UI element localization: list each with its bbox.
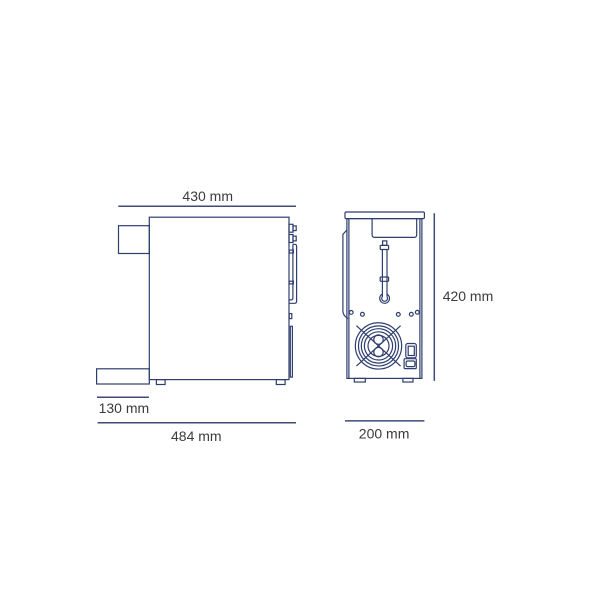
svg-text:130 mm: 130 mm xyxy=(99,400,150,416)
svg-text:430 mm: 430 mm xyxy=(182,188,233,204)
svg-text:200 mm: 200 mm xyxy=(359,425,410,441)
svg-text:420 mm: 420 mm xyxy=(443,288,494,304)
svg-text:484 mm: 484 mm xyxy=(171,428,222,444)
